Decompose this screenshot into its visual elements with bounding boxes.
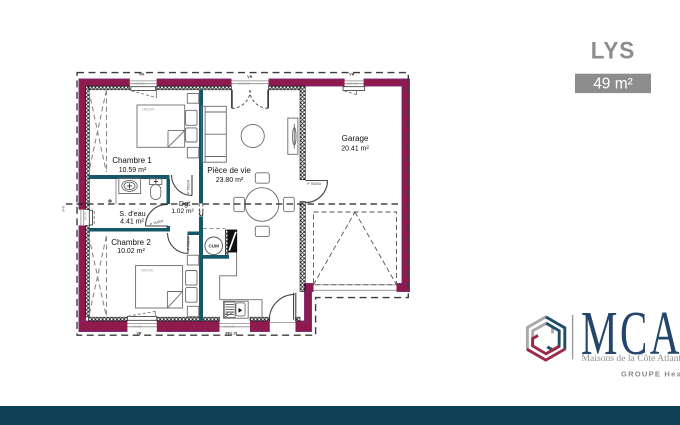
svg-text:4.41 m²: 4.41 m² [120,219,144,226]
svg-text:1.02 m²: 1.02 m² [171,208,194,215]
svg-text:CUM: CUM [208,244,219,249]
svg-text:20.41 m²: 20.41 m² [341,146,369,153]
svg-text:VR: VR [349,73,354,77]
svg-text:60x95: 60x95 [84,212,88,221]
svg-text:23.80 m²: 23.80 m² [216,177,244,184]
svg-text:140x190: 140x190 [141,269,153,273]
svg-text:PF2.15: PF2.15 [226,332,238,336]
svg-text:Garage: Garage [342,134,369,143]
svg-text:Pièce de vie: Pièce de vie [207,166,251,175]
svg-text:Chambre 2: Chambre 2 [111,238,151,247]
svg-text:P 75/204: P 75/204 [307,182,321,186]
svg-text:VR: VR [247,75,252,79]
svg-text:S. d'eau: S. d'eau [119,209,145,218]
svg-text:140x190: 140x190 [142,108,154,112]
svg-text:10.02 m²: 10.02 m² [117,248,145,255]
svg-text:LYS: LYS [591,37,636,64]
svg-text:VR: VR [139,73,144,77]
svg-text:Chambre 1: Chambre 1 [112,156,152,165]
svg-text:240x215: 240x215 [238,81,250,85]
svg-text:Dgt: Dgt [179,199,190,208]
svg-text:P 75/204: P 75/204 [187,180,191,194]
svg-text:100x115: 100x115 [224,324,236,328]
svg-text:140x115: 140x115 [131,324,143,328]
svg-text:10.59 m²: 10.59 m² [119,167,147,174]
svg-text:P 75/204: P 75/204 [187,237,191,251]
svg-text:49 m²: 49 m² [593,76,633,93]
svg-text:Maisons de la Côte Atlantique: Maisons de la Côte Atlantique [582,353,680,364]
svg-text:GROUPE Hexa: GROUPE Hexa [621,370,680,379]
svg-text:140x115: 140x115 [134,81,146,85]
svg-text:VR: VR [137,332,142,336]
svg-text:0+9: 0+9 [62,206,66,212]
svg-text:100x115: 100x115 [347,81,359,85]
